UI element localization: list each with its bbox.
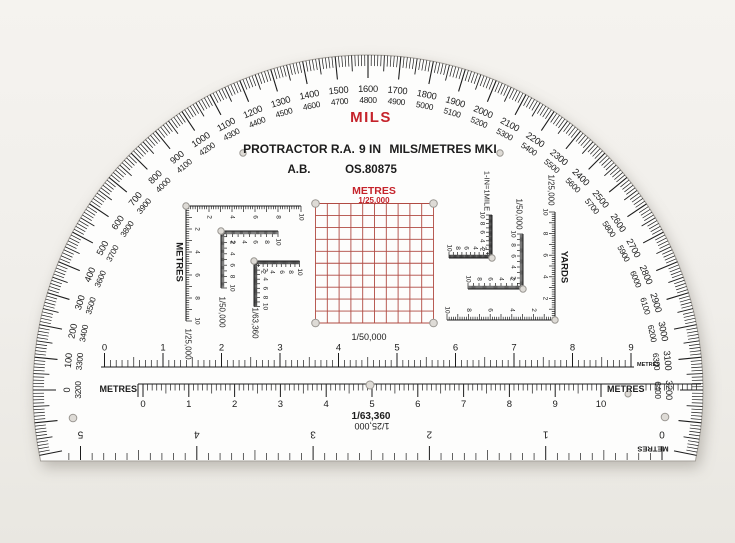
svg-text:0: 0 — [659, 429, 665, 440]
grid-scale-label: 1/25,000 — [358, 196, 390, 205]
svg-text:6: 6 — [479, 230, 486, 234]
svg-text:8: 8 — [454, 246, 461, 250]
title-model: MILS/METRES MKI — [389, 142, 496, 156]
svg-text:10: 10 — [596, 399, 607, 410]
svg-text:6: 6 — [278, 270, 285, 274]
svg-text:0: 0 — [140, 399, 145, 410]
svg-text:10: 10 — [296, 268, 303, 276]
svg-text:10: 10 — [194, 317, 201, 325]
svg-text:8: 8 — [275, 215, 282, 219]
svg-text:4800: 4800 — [359, 95, 377, 105]
svg-text:4: 4 — [194, 250, 201, 254]
left-metres-axis-label: METRES — [174, 242, 185, 282]
svg-text:2: 2 — [219, 343, 224, 354]
title-ab: A.B. — [288, 164, 311, 176]
svg-text:4900: 4900 — [387, 96, 406, 108]
svg-text:6: 6 — [252, 240, 259, 244]
svg-text:3300: 3300 — [74, 352, 86, 371]
svg-text:4700: 4700 — [330, 96, 349, 108]
svg-text:6: 6 — [229, 263, 236, 267]
svg-text:10: 10 — [479, 211, 486, 219]
svg-text:2: 2 — [232, 399, 237, 410]
svg-text:1600: 1600 — [358, 84, 378, 94]
svg-text:5: 5 — [77, 429, 83, 440]
svg-text:6: 6 — [194, 273, 201, 277]
svg-text:2: 2 — [229, 241, 236, 245]
svg-text:4: 4 — [229, 215, 236, 219]
svg-text:10: 10 — [542, 208, 549, 216]
svg-text:7: 7 — [511, 343, 516, 354]
svg-text:8: 8 — [262, 296, 269, 300]
svg-text:100: 100 — [63, 353, 74, 369]
svg-text:2: 2 — [530, 308, 537, 312]
ruler1-scale-label: 1/50,000 — [351, 332, 386, 342]
svg-text:6: 6 — [487, 308, 494, 312]
svg-text:6: 6 — [463, 246, 470, 250]
title-os-number: OS.80875 — [345, 164, 397, 176]
ruler2-metres-left-label: METRES — [99, 384, 137, 394]
svg-text:5: 5 — [369, 399, 374, 410]
svg-text:4: 4 — [510, 265, 517, 269]
svg-text:4: 4 — [229, 252, 236, 256]
svg-text:2: 2 — [542, 297, 549, 301]
svg-text:1500: 1500 — [328, 84, 349, 96]
ruler2-scale-label: 1/63,360 — [352, 411, 391, 422]
svg-text:0: 0 — [102, 343, 107, 354]
svg-text:2: 2 — [426, 429, 432, 440]
svg-text:10: 10 — [510, 230, 517, 238]
svg-text:10: 10 — [262, 303, 269, 311]
svg-text:3: 3 — [310, 429, 316, 440]
svg-text:8: 8 — [570, 343, 575, 354]
svg-text:5: 5 — [394, 343, 399, 354]
svg-text:8: 8 — [287, 270, 294, 274]
svg-text:9: 9 — [553, 399, 558, 410]
svg-text:1: 1 — [542, 429, 548, 440]
title-size: 9 IN — [359, 142, 381, 156]
svg-text:4: 4 — [471, 246, 478, 250]
ruler3-scale-label: 1/25,000 — [354, 421, 389, 431]
svg-text:6: 6 — [252, 215, 259, 219]
svg-text:8: 8 — [479, 222, 486, 226]
svg-text:10: 10 — [275, 238, 282, 246]
svg-text:4: 4 — [269, 270, 276, 274]
svg-text:4: 4 — [498, 277, 505, 281]
svg-text:7: 7 — [461, 399, 466, 410]
left-scale-63360-label: 1/63,360 — [251, 307, 260, 339]
svg-text:8: 8 — [507, 399, 512, 410]
svg-text:3100: 3100 — [662, 350, 674, 371]
right-scale-1in1mile-label: 1-IN=1MILE — [483, 171, 492, 211]
svg-text:8: 8 — [194, 296, 201, 300]
svg-text:4: 4 — [336, 343, 341, 354]
right-scale-50000-label: 1/50,000 — [515, 198, 524, 230]
svg-text:3200: 3200 — [73, 381, 83, 399]
ruler2-metres-right-label: METRES — [607, 384, 645, 394]
svg-text:6: 6 — [453, 343, 458, 354]
left-scale-50000-label: 1/50,000 — [218, 296, 227, 328]
svg-text:2: 2 — [510, 276, 517, 280]
svg-text:8: 8 — [542, 232, 549, 236]
svg-text:10: 10 — [229, 284, 236, 292]
svg-text:1: 1 — [160, 343, 165, 354]
svg-text:6: 6 — [542, 253, 549, 257]
right-scale-25000-label: 1/25,000 — [547, 174, 556, 206]
svg-text:6: 6 — [262, 286, 269, 290]
svg-text:2: 2 — [206, 215, 213, 219]
svg-text:4: 4 — [324, 399, 329, 410]
left-scale-25000-label: 1/25,000 — [184, 328, 193, 360]
title-protractor: PROTRACTOR R.A. — [243, 142, 355, 156]
protractor: 0320010033002003400300350040036005003700… — [0, 0, 735, 543]
svg-text:6: 6 — [415, 399, 420, 410]
svg-text:1700: 1700 — [387, 84, 408, 96]
ruler1-metres-label: METRES — [637, 362, 660, 368]
svg-text:10: 10 — [446, 244, 453, 252]
mils-title: MILS — [350, 109, 392, 126]
svg-text:10: 10 — [465, 275, 472, 283]
ruler3-metres-label: METRES — [637, 445, 668, 454]
svg-text:8: 8 — [229, 275, 236, 279]
svg-text:10: 10 — [444, 306, 451, 314]
svg-text:3: 3 — [278, 399, 283, 410]
svg-text:8: 8 — [465, 308, 472, 312]
svg-text:4: 4 — [479, 239, 486, 243]
svg-text:4: 4 — [240, 240, 247, 244]
svg-text:6: 6 — [510, 254, 517, 258]
svg-text:3: 3 — [277, 343, 282, 354]
svg-text:4: 4 — [262, 277, 269, 281]
svg-text:1: 1 — [186, 399, 191, 410]
svg-text:6: 6 — [487, 277, 494, 281]
svg-text:0: 0 — [62, 387, 72, 392]
svg-text:9: 9 — [628, 343, 633, 354]
svg-text:8: 8 — [476, 277, 483, 281]
svg-text:8: 8 — [510, 243, 517, 247]
svg-text:4: 4 — [194, 429, 200, 440]
page-background: 0320010033002003400300350040036005003700… — [0, 0, 735, 543]
yards-axis-label: YARDS — [559, 251, 570, 283]
svg-text:8: 8 — [263, 240, 270, 244]
svg-text:10: 10 — [298, 213, 305, 221]
svg-text:2: 2 — [262, 268, 269, 272]
svg-text:4: 4 — [508, 308, 515, 312]
svg-text:4: 4 — [542, 275, 549, 279]
svg-text:2: 2 — [479, 248, 486, 252]
svg-text:2: 2 — [194, 227, 201, 231]
